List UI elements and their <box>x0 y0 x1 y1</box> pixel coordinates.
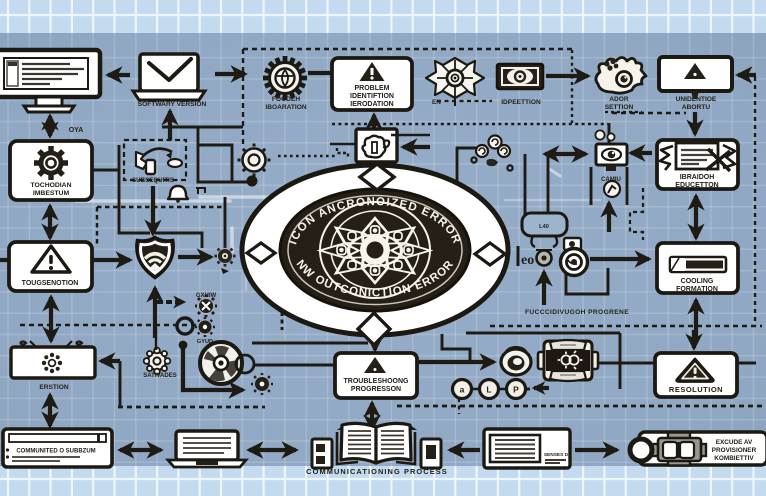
svg-text:EXCUDE AV: EXCUDE AV <box>716 439 753 446</box>
svg-text:KOMBIETTIV: KOMBIETTIV <box>714 455 754 462</box>
svg-text:PROGRESSON: PROGRESSON <box>351 386 401 393</box>
svg-text:FOODEH: FOODEH <box>272 96 300 103</box>
svg-text:IMBESTUM: IMBESTUM <box>33 190 70 197</box>
svg-text:FUCCCIDIVUGOH PROGRENE: FUCCCIDIVUGOH PROGRENE <box>525 309 629 316</box>
svg-text:ERSTION: ERSTION <box>39 384 69 391</box>
svg-text:SETTION: SETTION <box>605 104 634 111</box>
svg-text:EDUCETTON: EDUCETTON <box>675 182 718 189</box>
svg-text:COMMUNITED O SUBBZUM: COMMUNITED O SUBBZUM <box>16 449 95 455</box>
svg-text:FORMATION: FORMATION <box>676 286 718 293</box>
svg-text:TOCHODIAN: TOCHODIAN <box>30 182 71 189</box>
svg-text:PROBLEM: PROBLEM <box>355 85 390 92</box>
svg-text:RESOLUTION: RESOLUTION <box>669 385 723 394</box>
svg-text:IBOARATION: IBOARATION <box>265 104 307 111</box>
svg-text:SATIVADES: SATIVADES <box>143 373 176 379</box>
svg-text:L40: L40 <box>539 224 549 230</box>
svg-text:ADOR: ADOR <box>609 96 629 103</box>
svg-text:ABORTU: ABORTU <box>682 104 710 111</box>
svg-text:P: P <box>513 385 519 395</box>
svg-text:SUBSEQUITIS: SUBSEQUITIS <box>132 177 174 184</box>
svg-text:COOLING: COOLING <box>681 278 714 285</box>
svg-text:IDENTIFTION: IDENTIFTION <box>350 93 394 100</box>
svg-text:EN: EN <box>432 99 441 106</box>
svg-text:TOUGSENOTION: TOUGSENOTION <box>22 280 79 287</box>
svg-text:IERODATION: IERODATION <box>350 101 393 108</box>
svg-text:UNIDENTIOE: UNIDENTIOE <box>676 96 717 103</box>
svg-text:IDPEETTION: IDPEETTION <box>501 99 541 106</box>
svg-text:L: L <box>486 385 491 395</box>
svg-text:PROVISIONER: PROVISIONER <box>712 447 757 454</box>
svg-text:IBRAIDOH: IBRAIDOH <box>680 174 715 181</box>
svg-text:TROUBLESHOONG: TROUBLESHOONG <box>344 378 410 385</box>
svg-text:COMMUNICATIONING PROCESS: COMMUNICATIONING PROCESS <box>306 467 448 476</box>
svg-text:eo: eo <box>521 253 534 268</box>
svg-text:OYA: OYA <box>69 127 84 134</box>
svg-text:SENSES D: SENSES D <box>544 452 569 458</box>
svg-text:a: a <box>460 385 465 395</box>
svg-text:SOFTWARY VERSION: SOFTWARY VERSION <box>138 101 207 108</box>
